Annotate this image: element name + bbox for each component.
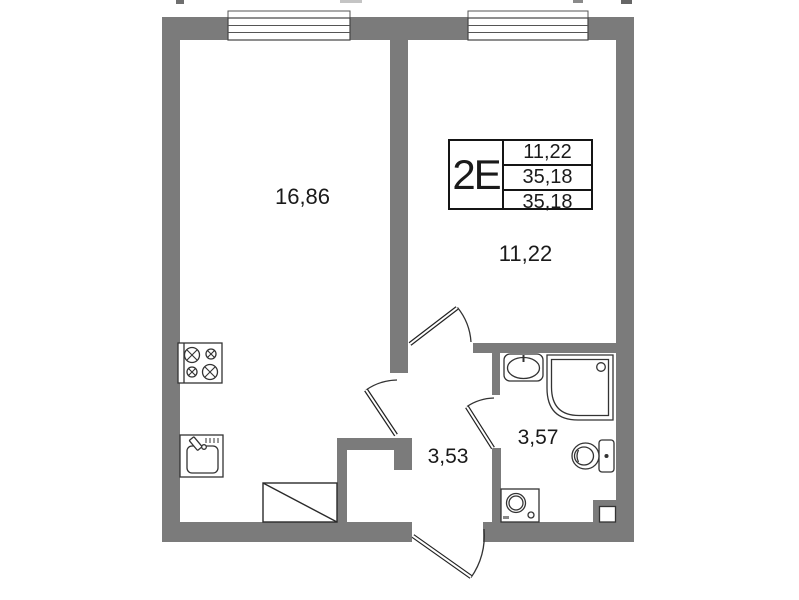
wall	[588, 17, 634, 40]
top-edge-marks	[176, 0, 632, 4]
wall-bottom-left	[162, 522, 412, 542]
washing-machine-icon	[501, 489, 539, 522]
door-bedroom	[410, 308, 471, 345]
floor-plan-drawing	[0, 0, 799, 600]
wall-bottom-right	[483, 522, 634, 542]
wall-right	[616, 40, 634, 542]
door-entrance	[413, 529, 484, 578]
window-left	[228, 11, 350, 40]
wall-bath-upper	[492, 353, 500, 395]
wall	[350, 17, 468, 40]
wall-niche-left	[337, 438, 347, 522]
wall	[162, 17, 228, 40]
unit-info-rows: 11,22 35,18 35,18	[504, 141, 591, 208]
room-label-hallway: 3,53	[413, 446, 483, 468]
washbasin-icon	[504, 354, 543, 381]
shower-cabin-icon	[547, 355, 613, 420]
wall-bedroom-partition	[473, 343, 616, 353]
door-swing-icon	[458, 308, 472, 343]
door-swing-icon	[366, 380, 397, 390]
room-label-bathroom: 3,57	[503, 427, 573, 449]
unit-type-label: 2Е	[450, 141, 504, 208]
kitchen-sink-icon	[180, 435, 223, 477]
wall-bath-lower	[492, 448, 501, 522]
unit-info-row-overall-area: 35,18	[504, 191, 591, 214]
unit-info-row-total-area: 35,18	[504, 164, 591, 191]
toilet-icon	[572, 440, 614, 472]
window-right	[468, 11, 588, 40]
door-living	[366, 380, 397, 435]
window-icon	[468, 18, 588, 40]
wall-left	[162, 40, 180, 542]
door-swing-icon	[467, 398, 494, 407]
window-icon	[468, 11, 588, 18]
floor-plan: 16,86 11,22 3,53 3,57 2Е 11,22 35,18 35,…	[0, 0, 799, 600]
wall-living-partition	[390, 40, 408, 373]
walls	[162, 17, 634, 542]
unit-info-row-living-area: 11,22	[504, 141, 591, 164]
room-label-living: 16,86	[265, 185, 340, 208]
door-bathroom	[467, 398, 494, 448]
wardrobe-icon	[263, 483, 337, 522]
wall-niche-stub	[394, 450, 412, 470]
unit-info-table: 2Е 11,22 35,18 35,18	[448, 139, 593, 210]
room-label-bedroom: 11,22	[488, 242, 563, 265]
stove-icon	[178, 343, 222, 383]
wall-niche-top	[337, 438, 412, 450]
door-swing-icon	[471, 529, 484, 578]
vent-shaft-icon	[600, 507, 616, 523]
window-icon	[228, 11, 350, 18]
window-icon	[228, 18, 350, 40]
